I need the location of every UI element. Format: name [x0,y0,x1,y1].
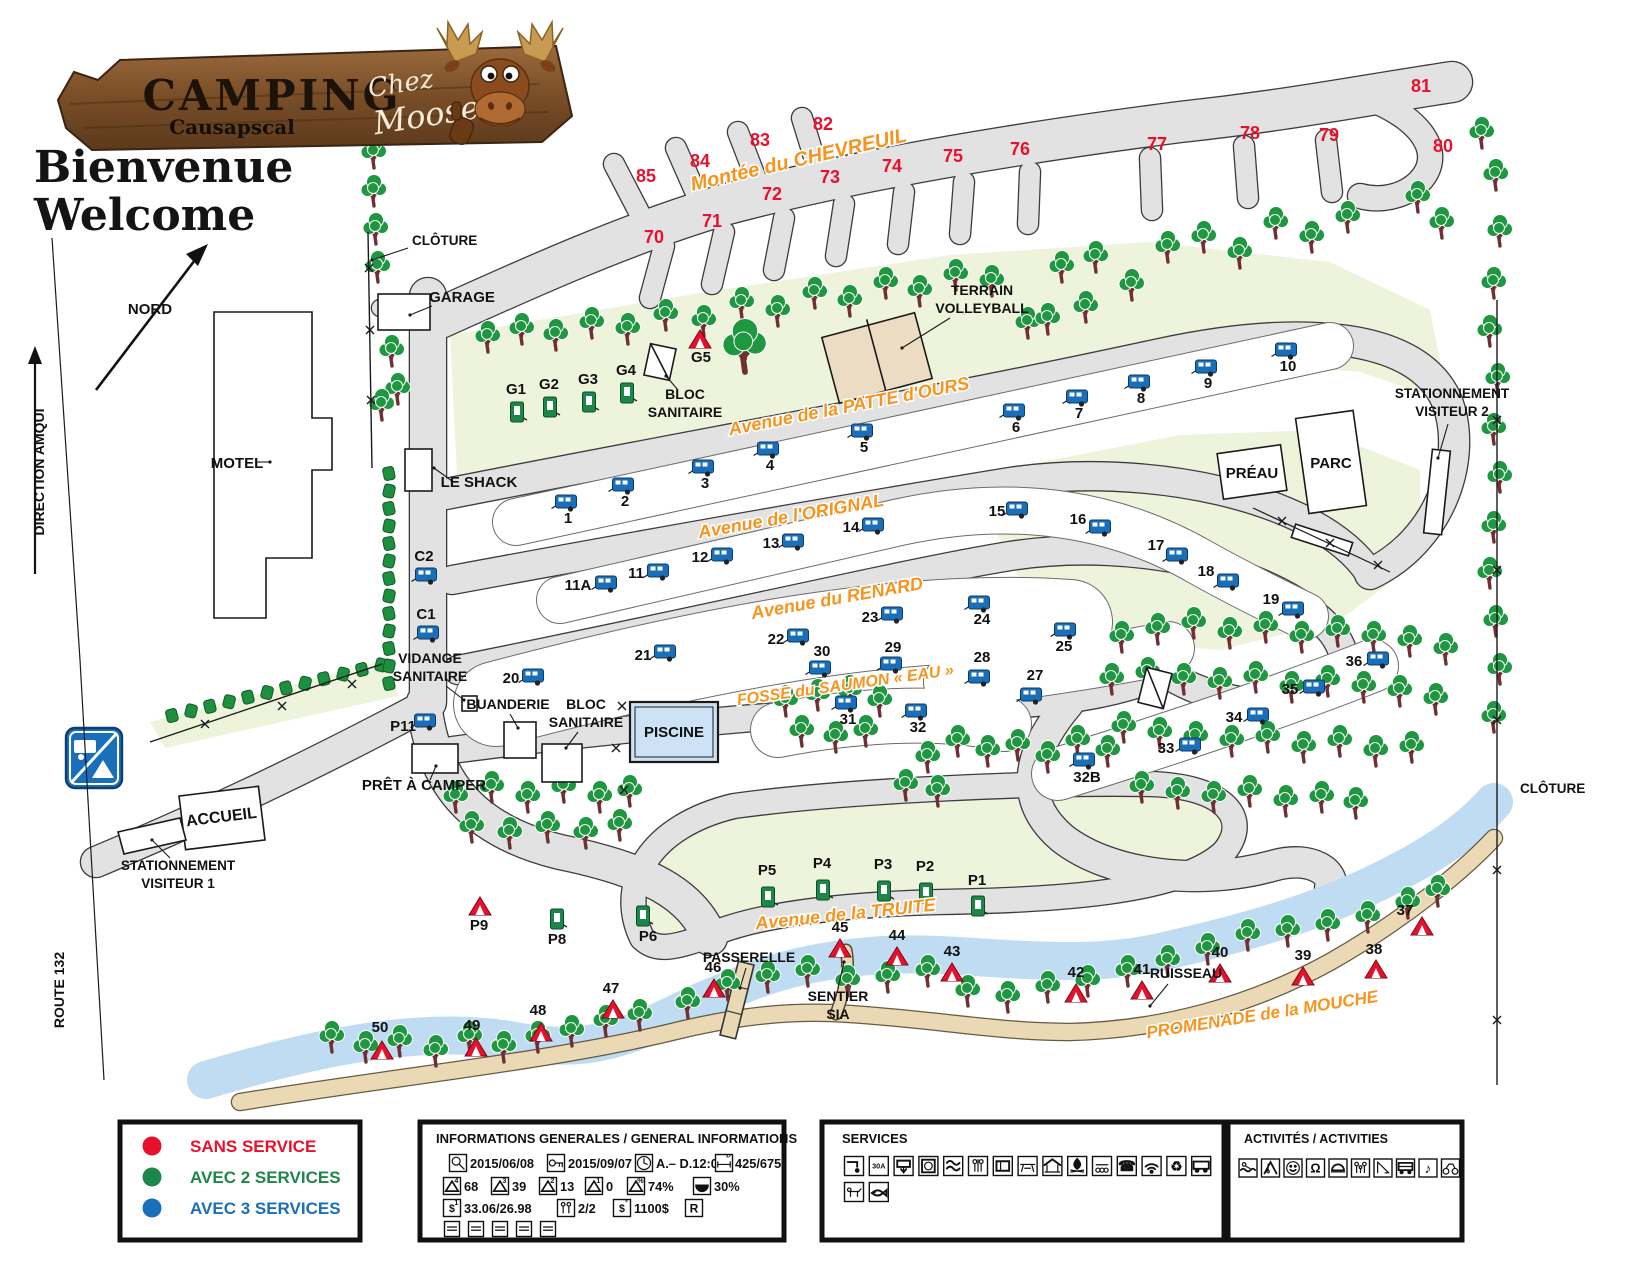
site-11A-label: 11A [565,577,592,594]
box-text: A.– D.12:00 [656,1156,725,1171]
card-icon [469,1222,484,1237]
box-text: 68 [464,1179,478,1194]
site-9-label: 9 [1204,375,1212,392]
label-sentier-b: SIA [826,1006,849,1022]
svg-text:1: 1 [454,1199,458,1207]
label-vidange-a: VIDANGE [398,650,462,666]
pointer-dot [150,838,153,841]
site-1-label: 1 [564,510,572,527]
site-G4-label: G4 [616,362,637,379]
card-icon [493,1222,508,1237]
campfire-icon [1068,1157,1087,1176]
site-81-label: 81 [1411,76,1431,96]
site-74-label: 74 [882,156,902,176]
tent1-icon: 1 [586,1177,603,1195]
toilets-icon [969,1157,988,1176]
site-12-label: 12 [692,549,709,566]
box-text: 74% [648,1179,674,1194]
site-48-label: 48 [530,1002,547,1019]
price2-icon: $° [614,1199,631,1217]
box-text: 33.06/26.98 [464,1201,532,1216]
site-49-label: 49 [464,1017,481,1034]
site-15-label: 15 [989,503,1006,520]
site-3-label: 3 [701,475,709,492]
site-P3-label: P3 [874,856,892,873]
label-motel: MOTEL [211,455,264,472]
bush [382,466,395,481]
site-31-label: 31 [840,711,857,728]
svg-text:☎: ☎ [1118,1159,1136,1175]
svg-text:Ω: Ω [1310,1161,1320,1176]
svg-text:³ᐟ: ³ᐟ [726,1154,731,1162]
bush [382,606,395,621]
label-bloc-sanitaire-2b: SANITAIRE [549,714,623,730]
camping-road-sign [66,728,122,788]
site-80-label: 80 [1433,136,1453,156]
site-G5-label: G5 [691,349,711,366]
site-G3-label: G3 [578,371,598,388]
site-40-label: 40 [1212,944,1229,961]
site-28-label: 28 [974,649,991,666]
site-G2-label: G2 [539,376,559,393]
site-34-label: 34 [1226,709,1243,726]
kitchen-icon [993,1157,1012,1176]
pointer-dot [432,466,435,469]
logo-subtitle: Causapscal [169,115,295,139]
site-P11-label: P11 [390,718,416,735]
buanderie-building [504,722,536,758]
label-cloture-1: CLÔTURE [412,233,477,248]
box-text: 13 [560,1179,574,1194]
music-icon: ♪ [1419,1159,1437,1177]
site-C2-label: C2 [414,548,433,565]
site-33-label: 33 [1158,740,1175,757]
label-nord: NORD [128,301,172,318]
svg-text:30A: 30A [872,1162,886,1171]
site-76-label: 76 [1010,139,1030,159]
label-bloc-sanitaire-2a: BLOC [566,696,606,712]
site-32-label: 32 [910,719,927,736]
bush [382,589,395,604]
site-78-label: 78 [1240,123,1260,143]
pointer-dot [738,986,741,989]
recycle-icon: ♻ [1167,1157,1186,1176]
box-text: 2015/09/07 [568,1156,632,1171]
svg-text:°: ° [625,1199,628,1207]
label-piscine: PISCINE [644,724,704,741]
site-17-label: 17 [1148,537,1165,554]
picnic-icon [1018,1157,1037,1176]
box-text: 425/675 [735,1156,781,1171]
label-direction-amqui: DIRECTION AMQUI [31,408,47,535]
label-bloc-sanitaire-1b: SANITAIRE [648,404,722,420]
legend-dot [143,1137,162,1156]
tent3-icon: 3 [492,1177,509,1195]
site-70-label: 70 [644,227,664,247]
activities-box-title: ACTIVITÉS / ACTIVITIES [1244,1131,1388,1146]
site-83-label: 83 [750,130,770,150]
svg-text:3: 3 [502,1177,506,1185]
site-14-label: 14 [843,519,860,536]
bush [382,624,395,639]
svg-text:♻: ♻ [1170,1159,1182,1174]
welcome-line1: Bienvenue [34,142,293,193]
site-39-label: 39 [1295,947,1312,964]
box-text: 30% [714,1179,740,1194]
label-ruisseau: RUISSEAU [1150,965,1222,981]
legend-dot [143,1199,162,1218]
site-75-label: 75 [943,146,963,166]
games-icon [1284,1159,1302,1177]
bowl-icon [694,1178,711,1195]
label-stat-vis-1b: VISITEUR 1 [141,876,215,891]
pointer-dot [268,460,271,463]
wifi-icon [1142,1157,1161,1176]
box-text: 39 [512,1179,526,1194]
campground-map: 1234567891011A11121314151617181920212223… [0,0,1650,1275]
site-77-label: 77 [1147,134,1167,154]
water-icon [845,1157,864,1176]
pointer-dot [434,764,437,767]
site-79-label: 79 [1319,125,1339,145]
site-P1-label: P1 [968,872,986,889]
site-P8-label: P8 [548,931,566,948]
bush [382,536,395,551]
bush [382,484,395,499]
pointer-dot [900,346,903,349]
amp30-icon: 30A [869,1157,888,1176]
hotwater-icon [944,1157,963,1176]
registered-icon: R [686,1200,703,1217]
pointer-dot [462,698,465,701]
le-shack-building [405,449,432,491]
site-72-label: 72 [762,184,782,204]
key-icon [548,1155,565,1172]
welcome-line2: Welcome [33,190,255,241]
bloc-sanitaire-north-building [644,344,676,381]
site-27-label: 27 [1027,667,1044,684]
label-le-shack: LE SHACK [441,474,518,491]
site-24-label: 24 [974,611,991,628]
site-16-label: 16 [1070,511,1087,528]
card-icon [445,1222,460,1237]
train-icon [1397,1159,1415,1177]
price1-icon: $1 [444,1199,461,1217]
site-21-label: 21 [635,647,652,664]
people-icon [558,1200,575,1217]
bloc-sanitaire-central-building [542,744,582,782]
site-30-label: 30 [814,643,831,660]
site-19-label: 19 [1263,591,1280,608]
svg-text:%: % [637,1177,644,1185]
label-preau: PRÉAU [1226,465,1279,482]
firewood-icon [1093,1157,1112,1176]
tentpct-icon: % [628,1177,645,1195]
clock-icon [636,1155,653,1172]
site-42-label: 42 [1068,964,1085,981]
label-volleyball: VOLLEYBALL [935,300,1029,316]
atv-icon [1442,1159,1460,1177]
site-7-label: 7 [1075,405,1083,422]
measure-icon: ³ᐟ [716,1154,733,1172]
legend-label: AVEC 3 SERVICES [190,1199,341,1218]
label-buanderie: BUANDERIE [466,696,549,712]
site-2-label: 2 [621,493,629,510]
pets-icon [845,1183,864,1202]
welcome-heading: Bienvenue Welcome [33,142,293,241]
services-box-title: SERVICES [842,1131,908,1146]
laundry-icon [919,1157,938,1176]
bush [382,571,395,586]
site-73-label: 73 [820,167,840,187]
bush [382,501,395,516]
label-sentier-a: SENTIER [808,988,869,1004]
site-6-label: 6 [1012,419,1020,436]
card-icon [541,1222,556,1237]
box-text: 2/2 [578,1201,596,1216]
site-10-label: 10 [1280,358,1297,375]
dump-icon [894,1157,913,1176]
site-P5-label: P5 [758,862,776,879]
site-P2-label: P2 [916,858,934,875]
bush [382,519,395,534]
site-84-label: 84 [690,151,710,171]
site-32B-label: 32B [1073,769,1101,786]
site-50-label: 50 [372,1019,389,1036]
site-47-label: 47 [603,980,620,997]
tent2-icon: 2 [540,1177,557,1195]
site-35-label: 35 [1282,681,1299,698]
site-38-label: 38 [1366,941,1383,958]
helmet-icon [1329,1159,1347,1177]
site-C1-label: C1 [416,606,435,623]
site-22-label: 22 [768,631,785,648]
info-box-title: INFORMATIONS GENERALES / GENERAL INFORMA… [436,1131,797,1146]
site-20-label: 20 [503,670,520,687]
swimming-icon [1239,1159,1257,1177]
pavilion-icon [1043,1157,1062,1176]
site-P6-label: P6 [639,928,657,945]
label-stat-vis-1a: STATIONNEMENT [121,858,236,873]
family-icon [1352,1159,1370,1177]
svg-text:2: 2 [550,1177,554,1185]
site-P4-label: P4 [813,855,832,872]
garage-building [378,294,430,330]
pointer-dot [842,960,845,963]
pointer-dot [1436,456,1439,459]
bush [382,641,395,656]
site-29-label: 29 [885,639,902,656]
pointer-dot [664,374,667,377]
site-44-label: 44 [889,927,906,944]
site-71-label: 71 [702,211,722,231]
pointer-dot [370,258,373,261]
site-4-label: 4 [766,457,775,474]
legend-label: AVEC 2 SERVICES [190,1168,341,1187]
svg-text:♪: ♪ [1425,1161,1432,1176]
box-text: 2015/06/08 [470,1156,534,1171]
label-cloture-2: CLÔTURE [1520,781,1585,796]
site-11-label: 11 [628,565,644,582]
site-25-label: 25 [1056,638,1073,655]
fishing-icon [869,1183,888,1202]
pointer-dot [1148,1004,1151,1007]
site-G1-label: G1 [506,381,526,398]
label-passerelle: PASSERELLE [703,949,795,965]
svg-text:R: R [690,1201,699,1215]
pointer-dot [564,746,567,749]
horseshoe-icon: Ω [1307,1159,1325,1177]
label-bloc-sanitaire-1a: BLOC [665,386,705,402]
box-text: 1100$ [634,1201,669,1216]
magnifier-icon [450,1155,467,1172]
box-text: 0 [606,1179,613,1194]
label-parc: PARC [1310,455,1352,472]
site-82-label: 82 [813,114,833,134]
label-vidange-b: SANITAIRE [393,668,467,684]
rv-icon [1192,1157,1211,1176]
label-stat-vis-2b: VISITEUR 2 [1415,404,1489,419]
site-5-label: 5 [860,439,868,456]
label-terrain: TERRAIN [951,282,1013,298]
legend-label: SANS SERVICE [190,1137,316,1156]
tent4-icon: 4 [444,1177,461,1195]
playground-icon [1262,1159,1280,1177]
phone-icon: ☎ [1117,1157,1136,1176]
site-13-label: 13 [763,535,780,552]
label-stat-vis-2a: STATIONNEMENT [1395,386,1510,401]
svg-text:1: 1 [596,1177,600,1185]
legend-dot [143,1168,162,1187]
site-37-label: 37 [1397,902,1414,919]
pointer-dot [408,313,411,316]
logo-title: CAMPING [143,71,402,120]
slide-icon [1374,1159,1392,1177]
site-8-label: 8 [1137,390,1145,407]
label-garage: GARAGE [429,289,495,306]
site-41-label: 41 [1134,961,1151,978]
site-43-label: 43 [944,943,961,960]
site-18-label: 18 [1198,563,1215,580]
site-23-label: 23 [862,609,879,626]
bush [382,554,395,569]
card-icon [517,1222,532,1237]
site-36-label: 36 [1346,653,1363,670]
svg-text:4: 4 [454,1177,458,1185]
site-85-label: 85 [636,166,656,186]
pointer-dot [516,726,519,729]
site-P9-label: P9 [470,917,488,934]
label-route-132: ROUTE 132 [51,952,67,1028]
label-pret-a-camper: PRÊT À CAMPER [362,776,486,794]
